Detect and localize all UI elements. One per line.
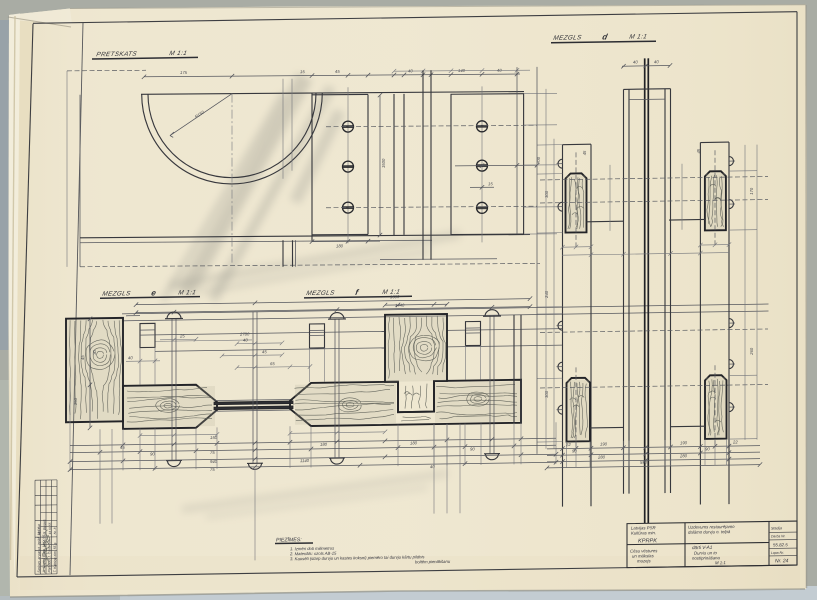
svg-text:30: 30: [92, 349, 97, 354]
svg-text:dārti V-A1: dārti V-A1: [692, 545, 713, 550]
svg-text:240: 240: [544, 290, 549, 299]
svg-text:90: 90: [705, 446, 710, 451]
svg-text:M 1:1: M 1:1: [715, 560, 726, 565]
svg-text:65: 65: [270, 361, 275, 366]
svg-text:M 1:1: M 1:1: [169, 50, 188, 57]
svg-text:22: 22: [565, 442, 571, 447]
svg-text:Kultūras min.: Kultūras min.: [631, 530, 656, 535]
svg-text:75: 75: [210, 450, 215, 455]
svg-text:1600: 1600: [390, 294, 400, 299]
svg-text:MEZGLS: MEZGLS: [306, 290, 336, 297]
svg-text:40: 40: [128, 355, 133, 360]
svg-text:Darba Nr.: Darba Nr.: [771, 534, 786, 538]
svg-text:180: 180: [336, 243, 344, 248]
svg-text:Stadija: Stadija: [771, 526, 782, 530]
svg-text:KPRPK: KPRPK: [638, 538, 657, 544]
svg-text:40: 40: [633, 59, 638, 64]
svg-text:45: 45: [696, 148, 701, 153]
svg-text:170: 170: [749, 187, 754, 195]
svg-text:15: 15: [300, 69, 305, 74]
svg-text:M 1:1: M 1:1: [629, 33, 648, 40]
svg-text:dalāmo durvju o. telpā: dalāmo durvju o. telpā: [688, 529, 731, 535]
svg-text:boltēm pienākšanu: boltēm pienākšanu: [415, 559, 451, 565]
svg-text:45: 45: [582, 150, 587, 155]
svg-text:PRETSKATS: PRETSKATS: [96, 51, 138, 59]
svg-text:700: 700: [536, 156, 541, 164]
svg-text:MEZGLS: MEZGLS: [102, 290, 132, 297]
svg-text:75: 75: [210, 467, 215, 472]
svg-text:45: 45: [80, 355, 85, 360]
svg-text:40: 40: [654, 59, 659, 64]
svg-text:190: 190: [680, 440, 688, 445]
svg-text:22: 22: [732, 439, 738, 444]
svg-text:55.82.5: 55.82.5: [773, 542, 788, 547]
svg-text:45: 45: [262, 349, 267, 354]
svg-text:PIEZĪMES:: PIEZĪMES:: [276, 536, 302, 543]
svg-text:40: 40: [243, 337, 248, 342]
svg-text:T. Kalniņa zim. 55 g.: T. Kalniņa zim. 55 g.: [53, 542, 57, 573]
svg-text:M 1:1: M 1:1: [178, 289, 197, 296]
svg-text:300: 300: [544, 390, 549, 398]
svg-text:90: 90: [150, 451, 155, 456]
svg-text:1500: 1500: [381, 158, 386, 168]
svg-text:1140: 1140: [300, 458, 310, 463]
svg-text:25: 25: [179, 333, 185, 338]
svg-text:175: 175: [180, 70, 188, 75]
svg-text:280: 280: [679, 453, 688, 458]
svg-text:Lapa-Nr.: Lapa-Nr.: [771, 551, 784, 555]
svg-text:190: 190: [600, 441, 608, 446]
svg-text:muzejs: muzejs: [637, 558, 651, 563]
svg-text:90: 90: [470, 446, 475, 451]
svg-text:14.IX.55: 14.IX.55: [48, 522, 52, 534]
svg-text:45: 45: [335, 69, 340, 74]
svg-text:180: 180: [320, 442, 328, 447]
svg-text:izp. dat.: izp. dat.: [37, 523, 41, 535]
svg-text:45: 45: [120, 445, 125, 450]
svg-text:300: 300: [544, 190, 549, 198]
svg-text:940: 940: [210, 459, 218, 464]
svg-text:15: 15: [488, 181, 493, 186]
svg-text:150: 150: [73, 397, 78, 405]
svg-text:2780: 2780: [239, 331, 250, 336]
svg-text:Nr. 8: Nr. 8: [53, 527, 57, 534]
svg-text:280: 280: [597, 454, 606, 459]
svg-text:Nr. 24: Nr. 24: [775, 558, 789, 564]
svg-text:40: 40: [430, 464, 435, 469]
svg-text:MEZGLS: MEZGLS: [553, 34, 583, 41]
svg-text:590: 590: [640, 460, 648, 465]
svg-text:90: 90: [572, 448, 577, 453]
svg-text:260: 260: [749, 347, 754, 356]
svg-text:M. Bērziņš: M. Bērziņš: [43, 519, 47, 535]
svg-text:150: 150: [210, 435, 218, 440]
svg-text:180: 180: [410, 440, 418, 445]
